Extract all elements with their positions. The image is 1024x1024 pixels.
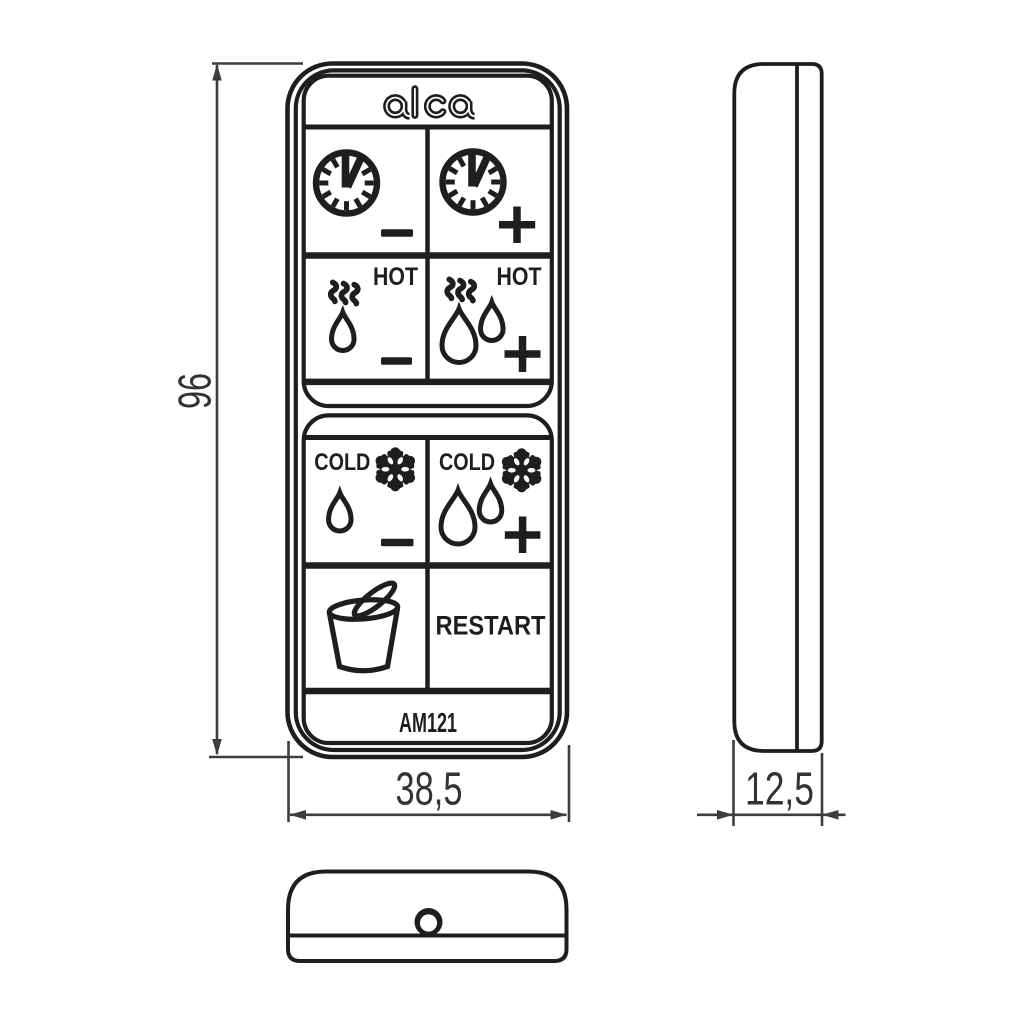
- svg-text:12,5: 12,5: [745, 763, 814, 815]
- svg-text:COLD: COLD: [439, 449, 495, 476]
- svg-text:HOT: HOT: [497, 263, 542, 291]
- svg-text:HOT: HOT: [373, 263, 418, 291]
- svg-text:AM121: AM121: [399, 707, 457, 738]
- svg-text:96: 96: [169, 373, 221, 409]
- svg-text:RESTART: RESTART: [436, 611, 546, 641]
- svg-text:COLD: COLD: [314, 449, 370, 476]
- svg-text:38,5: 38,5: [396, 763, 463, 815]
